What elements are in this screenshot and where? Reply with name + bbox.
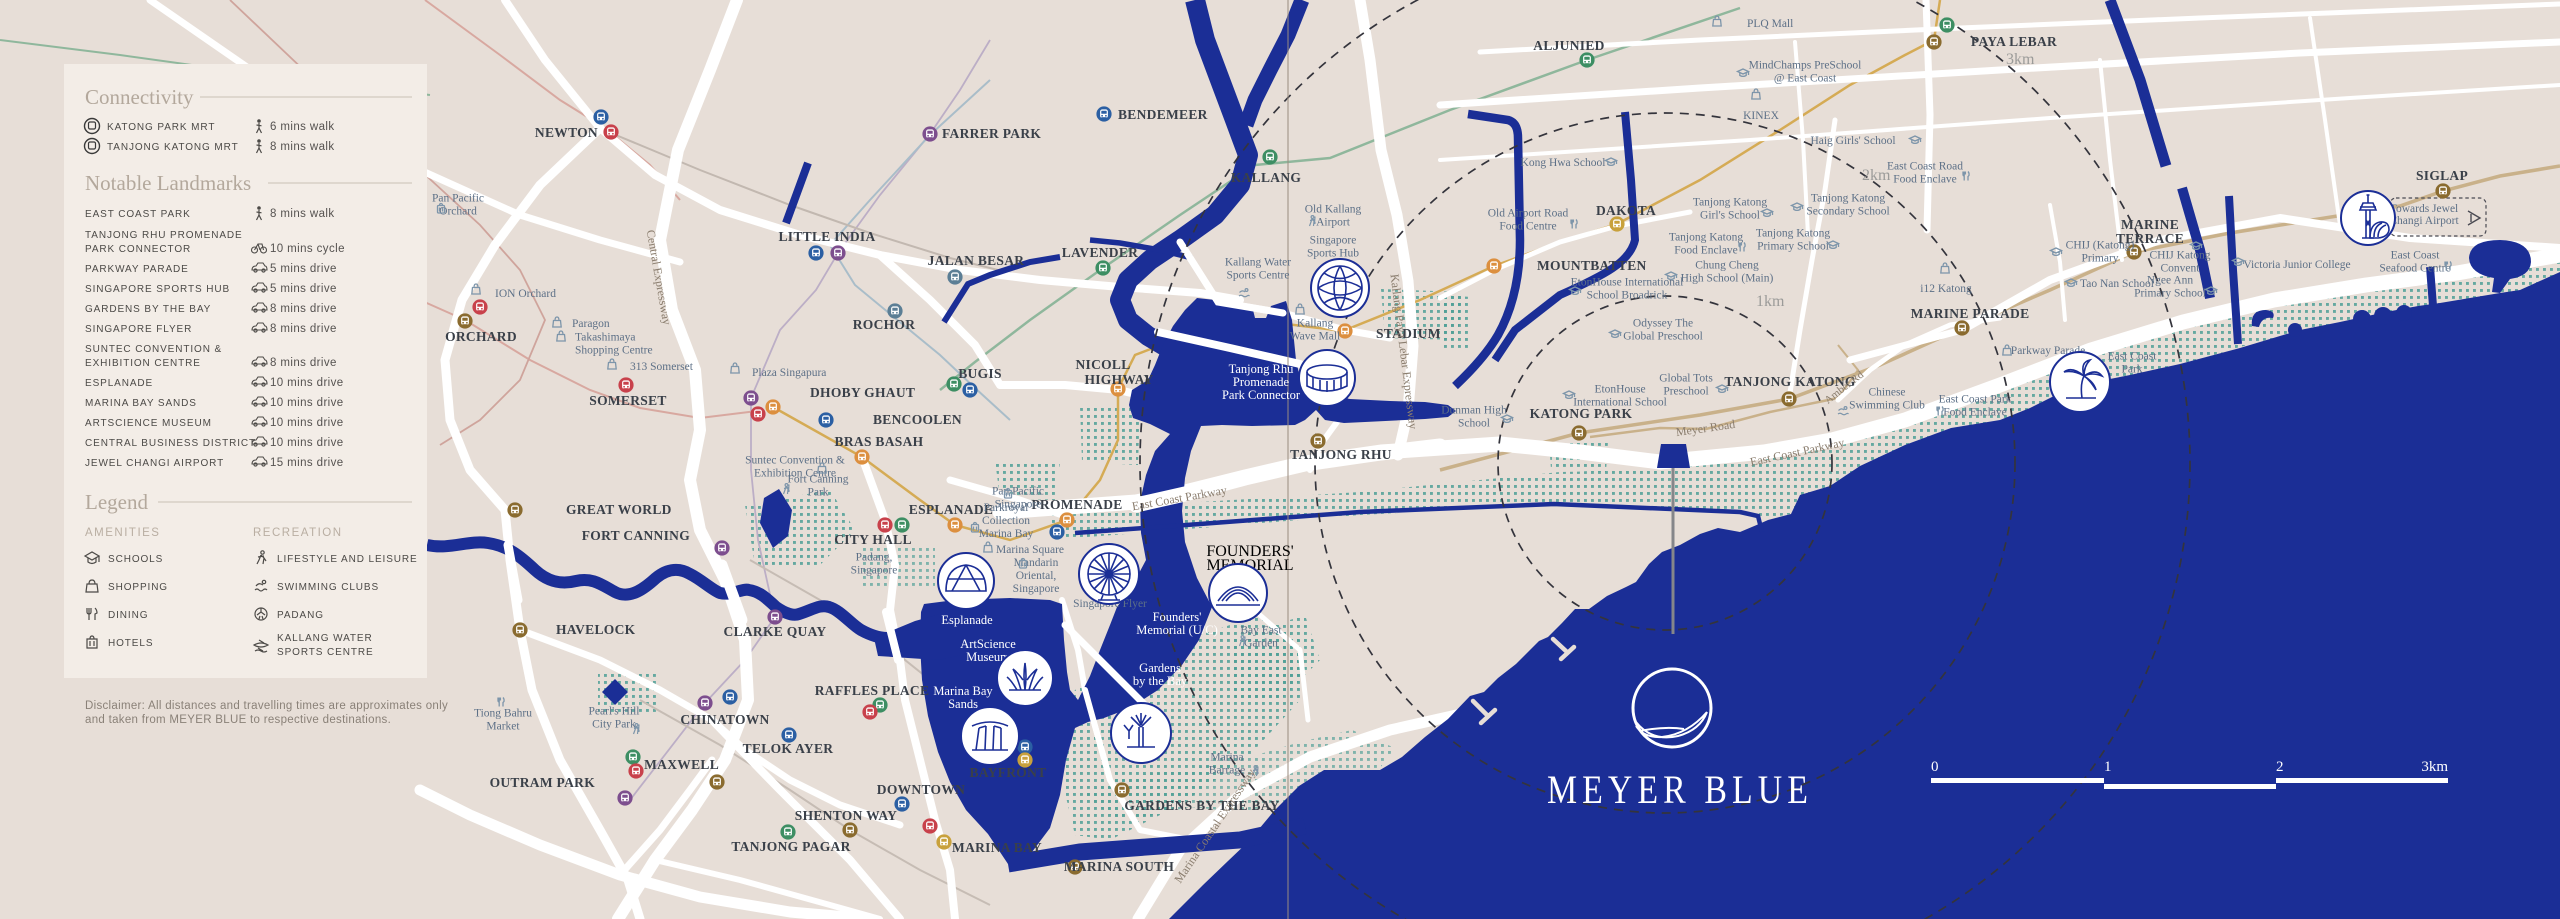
svg-text:RECREATION: RECREATION: [253, 527, 343, 539]
svg-text:Wave Mall: Wave Mall: [1290, 331, 1341, 343]
svg-text:CENTRAL BUSINESS DISTRICT: CENTRAL BUSINESS DISTRICT: [85, 438, 256, 449]
svg-text:KATONG PARK MRT: KATONG PARK MRT: [107, 122, 215, 133]
svg-text:PAYA LEBAR: PAYA LEBAR: [1971, 34, 2057, 49]
svg-text:EAST COAST PARK: EAST COAST PARK: [85, 209, 191, 220]
svg-text:Bay East: Bay East: [1240, 625, 1282, 637]
svg-text:NEWTON: NEWTON: [535, 125, 598, 140]
svg-text:Garden: Garden: [1244, 638, 1278, 650]
svg-text:0: 0: [1931, 759, 1939, 775]
svg-text:Pearl's Hill: Pearl's Hill: [589, 706, 640, 718]
svg-text:8 mins drive: 8 mins drive: [270, 303, 337, 315]
svg-text:ESPLANADE: ESPLANADE: [85, 378, 153, 389]
svg-text:Marina: Marina: [1210, 752, 1243, 764]
svg-text:MARINA BAY: MARINA BAY: [952, 840, 1042, 855]
svg-text:3km: 3km: [2006, 51, 2035, 68]
svg-text:Tanjong Katong: Tanjong Katong: [1669, 232, 1744, 244]
svg-text:MindChamps PreSchool: MindChamps PreSchool: [1749, 60, 1862, 72]
svg-text:TANJONG RHU PROMENADE: TANJONG RHU PROMENADE: [85, 230, 243, 241]
svg-text:Notable Landmarks: Notable Landmarks: [85, 171, 251, 195]
svg-text:High School (Main): High School (Main): [1681, 273, 1774, 285]
svg-text:BAYFRONT: BAYFRONT: [970, 765, 1047, 780]
svg-text:DOWNTOWN: DOWNTOWN: [877, 782, 965, 797]
svg-text:Chinese: Chinese: [1868, 387, 1905, 399]
svg-text:BRAS BASAH: BRAS BASAH: [835, 434, 924, 449]
svg-text:SINGAPORE SPORTS HUB: SINGAPORE SPORTS HUB: [85, 284, 230, 295]
svg-text:East Coast Park: East Coast Park: [1939, 394, 2012, 406]
svg-text:Sports Hub: Sports Hub: [1307, 248, 1359, 260]
svg-text:Tanjong Katong: Tanjong Katong: [1811, 193, 1886, 205]
svg-text:Park: Park: [807, 487, 828, 499]
svg-text:LIFESTYLE AND LEISURE: LIFESTYLE AND LEISURE: [277, 554, 418, 565]
svg-text:EtonHouse: EtonHouse: [1594, 384, 1645, 396]
svg-text:1: 1: [2104, 759, 2112, 775]
svg-text:Seafood Centre: Seafood Centre: [2379, 263, 2450, 275]
svg-text:Swimming Club: Swimming Club: [1849, 400, 1925, 412]
svg-text:ARTSCIENCE MUSEUM: ARTSCIENCE MUSEUM: [85, 418, 212, 429]
svg-text:SWIMMING CLUBS: SWIMMING CLUBS: [277, 582, 379, 593]
svg-text:Food Centre: Food Centre: [1499, 221, 1556, 233]
svg-text:RAFFLES PLACE: RAFFLES PLACE: [815, 683, 930, 698]
svg-text:ROCHOR: ROCHOR: [853, 317, 916, 332]
svg-text:Global Tots: Global Tots: [1659, 373, 1713, 385]
svg-text:KALLANG WATER: KALLANG WATER: [277, 633, 373, 644]
svg-text:LITTLE INDIA: LITTLE INDIA: [778, 229, 875, 244]
svg-text:Plaza Singapura: Plaza Singapura: [752, 367, 826, 379]
svg-text:Dunman High: Dunman High: [1441, 405, 1507, 417]
svg-text:East Coast Road: East Coast Road: [1887, 161, 1963, 173]
svg-text:SPORTS CENTRE: SPORTS CENTRE: [277, 647, 374, 658]
svg-text:EtonHouse International: EtonHouse International: [1571, 277, 1684, 289]
svg-text:TANJONG PAGAR: TANJONG PAGAR: [731, 839, 850, 854]
svg-text:CITY HALL: CITY HALL: [834, 532, 912, 547]
svg-text:MAXWELL: MAXWELL: [644, 757, 719, 772]
svg-text:HAVELOCK: HAVELOCK: [556, 622, 636, 637]
svg-text:Padang,: Padang,: [856, 552, 893, 564]
svg-text:Shopping Centre: Shopping Centre: [575, 345, 653, 357]
svg-text:Parkroyal: Parkroyal: [984, 502, 1029, 514]
svg-text:Paragon: Paragon: [572, 318, 610, 330]
svg-text:Global Preschool: Global Preschool: [1623, 331, 1703, 343]
svg-text:Tiong Bahru: Tiong Bahru: [474, 708, 532, 720]
svg-text:MARINE: MARINE: [2121, 217, 2179, 232]
svg-text:Changi Airport: Changi Airport: [2389, 215, 2459, 227]
svg-text:Disclaimer: All distances and: Disclaimer: All distances and travelling…: [85, 700, 448, 712]
svg-text:Sands: Sands: [948, 697, 978, 711]
svg-text:15 mins drive: 15 mins drive: [270, 457, 344, 469]
svg-text:CHIJ (Katong): CHIJ (Katong): [2066, 240, 2135, 252]
svg-text:Old Airport Road: Old Airport Road: [1488, 208, 1569, 220]
svg-text:3km: 3km: [2421, 759, 2448, 775]
svg-text:Food Enclave: Food Enclave: [1943, 407, 2007, 419]
svg-text:Park: Park: [2121, 364, 2142, 376]
svg-text:@ East Coast: @ East Coast: [1774, 73, 1837, 85]
svg-text:Ngee Ann: Ngee Ann: [2147, 275, 2194, 287]
svg-text:SINGAPORE FLYER: SINGAPORE FLYER: [85, 324, 192, 335]
svg-text:KINEX: KINEX: [1743, 110, 1779, 122]
svg-text:10 mins cycle: 10 mins cycle: [270, 243, 345, 255]
svg-text:BENCOOLEN: BENCOOLEN: [873, 412, 962, 427]
svg-text:Primary: Primary: [2081, 253, 2118, 265]
svg-text:5 mins drive: 5 mins drive: [270, 263, 337, 275]
svg-text:LAVENDER: LAVENDER: [1062, 245, 1138, 260]
svg-text:MEYER BLUE: MEYER BLUE: [1547, 767, 1813, 812]
svg-text:Suntec Convention &: Suntec Convention &: [745, 455, 845, 467]
svg-text:SUNTEC CONVENTION &: SUNTEC CONVENTION &: [85, 344, 222, 355]
svg-text:Haig Girls' School: Haig Girls' School: [1810, 135, 1895, 147]
svg-text:HOTELS: HOTELS: [108, 638, 153, 649]
svg-text:Odyssey The: Odyssey The: [1633, 318, 1693, 330]
svg-text:1km: 1km: [1756, 293, 1785, 310]
svg-text:DINING: DINING: [108, 610, 148, 621]
svg-text:Chung Cheng: Chung Cheng: [1695, 260, 1759, 272]
svg-text:GARDENS BY THE BAY: GARDENS BY THE BAY: [85, 304, 211, 315]
svg-text:NICOLL: NICOLL: [1075, 357, 1130, 372]
svg-text:Food Enclave: Food Enclave: [1674, 245, 1738, 257]
svg-text:Gardens: Gardens: [1139, 661, 1181, 675]
svg-text:Convent: Convent: [2161, 263, 2201, 275]
svg-text:Mandarin: Mandarin: [1014, 557, 1059, 569]
svg-text:10 mins drive: 10 mins drive: [270, 437, 344, 449]
svg-text:Collection: Collection: [982, 515, 1030, 527]
svg-text:CHINATOWN: CHINATOWN: [680, 712, 769, 727]
svg-text:TANJONG RHU: TANJONG RHU: [1290, 447, 1392, 462]
svg-text:Kong Hwa School: Kong Hwa School: [1521, 157, 1606, 169]
svg-text:Singapore: Singapore: [851, 565, 898, 577]
svg-text:Singapore: Singapore: [1310, 235, 1357, 247]
svg-text:East Coast: East Coast: [2391, 250, 2441, 262]
svg-text:313 Somerset: 313 Somerset: [630, 361, 694, 373]
svg-text:Fort Canning: Fort Canning: [787, 474, 848, 486]
svg-text:Memorial (U/C): Memorial (U/C): [1136, 623, 1218, 637]
svg-text:Esplanade: Esplanade: [941, 613, 993, 627]
svg-text:i12 Katong: i12 Katong: [1920, 283, 1972, 295]
svg-text:Kallang: Kallang: [1297, 318, 1334, 330]
svg-text:MARINE PARADE: MARINE PARADE: [1911, 306, 2030, 321]
svg-text:GARDENS BY THE BAY: GARDENS BY THE BAY: [1124, 798, 1279, 813]
svg-text:HIGHWAY: HIGHWAY: [1084, 372, 1153, 387]
svg-text:8 mins drive: 8 mins drive: [270, 357, 337, 369]
svg-text:Legend: Legend: [85, 490, 148, 514]
svg-text:10 mins drive: 10 mins drive: [270, 397, 344, 409]
svg-text:2: 2: [2276, 759, 2284, 775]
svg-text:TELOK AYER: TELOK AYER: [743, 741, 834, 756]
svg-text:MARINA BAY SANDS: MARINA BAY SANDS: [85, 398, 197, 409]
svg-text:Towards Jewel: Towards Jewel: [2390, 203, 2459, 215]
svg-text:KALLANG: KALLANG: [1231, 170, 1302, 185]
svg-text:DHOBY GHAUT: DHOBY GHAUT: [810, 385, 915, 400]
svg-text:Park Connector: Park Connector: [1222, 388, 1301, 402]
svg-text:PLQ Mall: PLQ Mall: [1747, 18, 1793, 30]
svg-text:Primary School: Primary School: [2134, 288, 2206, 300]
svg-text:PARK CONNECTOR: PARK CONNECTOR: [85, 244, 191, 255]
svg-text:SOMERSET: SOMERSET: [589, 393, 666, 408]
svg-text:SHOPPING: SHOPPING: [108, 582, 168, 593]
svg-text:2km: 2km: [1862, 167, 1891, 184]
svg-text:Victoria Junior College: Victoria Junior College: [2243, 259, 2350, 271]
svg-text:Marina Bay: Marina Bay: [979, 528, 1034, 540]
svg-text:Tanjong Katong: Tanjong Katong: [1756, 228, 1831, 240]
svg-text:SCHOOLS: SCHOOLS: [108, 554, 163, 565]
svg-text:Airport: Airport: [1316, 217, 1351, 229]
svg-text:PARKWAY PARADE: PARKWAY PARADE: [85, 264, 189, 275]
svg-text:Primary School: Primary School: [1757, 241, 1829, 253]
svg-text:by the Bay: by the Bay: [1133, 674, 1188, 688]
svg-text:School: School: [1458, 418, 1490, 430]
svg-text:ALJUNIED: ALJUNIED: [1533, 38, 1604, 53]
svg-text:ArtScience: ArtScience: [960, 637, 1016, 651]
svg-text:MARINA SOUTH: MARINA SOUTH: [1064, 859, 1175, 874]
svg-text:BUGIS: BUGIS: [958, 366, 1002, 381]
svg-text:Preschool: Preschool: [1663, 386, 1708, 398]
svg-text:Marina Bay: Marina Bay: [933, 684, 993, 698]
svg-text:Pan Pacific: Pan Pacific: [992, 486, 1044, 498]
svg-text:BENDEMEER: BENDEMEER: [1118, 107, 1208, 122]
svg-text:Girl's School: Girl's School: [1700, 210, 1760, 222]
svg-text:Kallang Water: Kallang Water: [1225, 257, 1291, 269]
svg-text:MOUNTBATTEN: MOUNTBATTEN: [1537, 258, 1647, 273]
svg-text:EXHIBITION CENTRE: EXHIBITION CENTRE: [85, 358, 201, 369]
svg-text:and taken from MEYER BLUE to r: and taken from MEYER BLUE to respective …: [85, 714, 391, 726]
svg-text:TANJONG KATONG MRT: TANJONG KATONG MRT: [107, 142, 239, 153]
svg-text:8 mins walk: 8 mins walk: [270, 208, 334, 220]
svg-text:Promenade: Promenade: [1233, 375, 1290, 389]
svg-text:6 mins walk: 6 mins walk: [270, 121, 334, 133]
svg-text:ION Orchard: ION Orchard: [495, 288, 556, 300]
svg-text:Singapore: Singapore: [1013, 583, 1060, 595]
svg-text:PADANG: PADANG: [277, 610, 324, 621]
svg-text:Pan Pacific: Pan Pacific: [432, 193, 484, 205]
svg-text:FORT CANNING: FORT CANNING: [582, 528, 690, 543]
svg-text:10 mins drive: 10 mins drive: [270, 377, 344, 389]
svg-text:School Broadrick: School Broadrick: [1587, 290, 1668, 302]
svg-text:FARRER PARK: FARRER PARK: [942, 126, 1041, 141]
svg-text:8 mins drive: 8 mins drive: [270, 323, 337, 335]
svg-text:ORCHARD: ORCHARD: [445, 329, 517, 344]
svg-text:DAKOTA: DAKOTA: [1596, 203, 1656, 218]
svg-text:10 mins drive: 10 mins drive: [270, 417, 344, 429]
svg-text:Sports Centre: Sports Centre: [1227, 270, 1290, 282]
svg-text:SIGLAP: SIGLAP: [2416, 168, 2468, 183]
svg-text:GREAT WORLD: GREAT WORLD: [566, 502, 672, 517]
svg-text:Food Enclave: Food Enclave: [1893, 174, 1957, 186]
svg-text:Takashimaya: Takashimaya: [575, 332, 636, 344]
svg-text:Tanjong Katong: Tanjong Katong: [1693, 197, 1768, 209]
svg-text:8 mins walk: 8 mins walk: [270, 141, 334, 153]
svg-text:East Coast: East Coast: [2108, 351, 2158, 363]
svg-text:AMENITIES: AMENITIES: [85, 527, 160, 539]
svg-text:City Park: City Park: [592, 719, 636, 731]
svg-text:PROMENADE: PROMENADE: [1031, 497, 1122, 512]
svg-text:Connectivity: Connectivity: [85, 85, 194, 109]
svg-text:CLARKE QUAY: CLARKE QUAY: [724, 624, 827, 639]
svg-text:SHENTON WAY: SHENTON WAY: [795, 808, 897, 823]
svg-text:Tanjong Rhu: Tanjong Rhu: [1229, 362, 1294, 376]
svg-text:5 mins drive: 5 mins drive: [270, 283, 337, 295]
svg-text:CHIJ Katong: CHIJ Katong: [2149, 250, 2210, 262]
svg-text:Oriental,: Oriental,: [1016, 570, 1057, 582]
svg-text:International School: International School: [1573, 397, 1667, 409]
svg-text:Secondary School: Secondary School: [1806, 206, 1889, 218]
svg-text:Founders': Founders': [1153, 610, 1202, 624]
svg-text:ESPLANADE: ESPLANADE: [909, 502, 993, 517]
svg-text:Old Kallang: Old Kallang: [1305, 204, 1362, 216]
svg-text:Market: Market: [486, 721, 520, 733]
svg-text:JALAN BESAR: JALAN BESAR: [928, 253, 1025, 268]
svg-text:JEWEL CHANGI AIRPORT: JEWEL CHANGI AIRPORT: [85, 458, 224, 469]
svg-text:Marina Square: Marina Square: [996, 544, 1064, 556]
svg-text:OUTRAM PARK: OUTRAM PARK: [490, 775, 596, 790]
